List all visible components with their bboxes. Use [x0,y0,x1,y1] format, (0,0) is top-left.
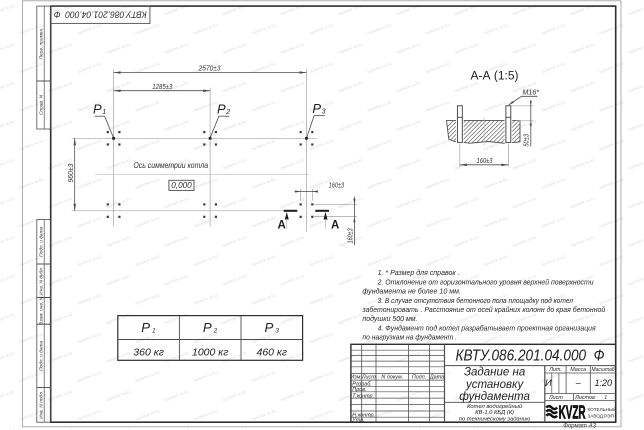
svg-text:teplotek-nv.kz: teplotek-nv.kz [164,3,190,16]
svg-text:teplotek-nv.kz: teplotek-nv.kz [338,41,364,54]
svg-text:teplotek-nv.kz: teplotek-nv.kz [599,22,625,35]
svg-text:Лист: Лист [361,375,376,381]
svg-text:teplotek-nv.kz: teplotek-nv.kz [0,119,15,132]
svg-text:teplotek-nv.kz: teplotek-nv.kz [570,3,596,16]
svg-text:teplotek-nv.kz: teplotek-nv.kz [454,234,480,247]
svg-text:P: P [141,320,150,335]
svg-text:teplotek-nv.kz: teplotek-nv.kz [222,273,248,286]
svg-text:1. * Размер для справок .: 1. * Размер для справок . [378,268,460,277]
svg-text:А: А [278,220,286,232]
svg-text:teplotek-nv.kz: teplotek-nv.kz [483,331,509,344]
svg-text:teplotek-nv.kz: teplotek-nv.kz [0,196,15,209]
svg-text:160±3: 160±3 [477,156,493,165]
svg-text:teplotek-nv.kz: teplotek-nv.kz [628,196,644,209]
svg-text:teplotek-nv.kz: teplotek-nv.kz [222,80,248,93]
svg-text:teplotek-nv.kz: teplotek-nv.kz [396,157,422,170]
svg-text:teplotek-nv.kz: teplotek-nv.kz [483,99,509,112]
svg-text:teplotek-nv.kz: teplotek-nv.kz [599,138,625,151]
svg-text:Инв. N дубл.: Инв. N дубл. [38,267,44,295]
svg-text:teplotek-nv.kz: teplotek-nv.kz [396,3,422,16]
svg-text:Масштаб: Масштаб [592,367,616,373]
svg-text:N докум.: N докум. [381,375,403,381]
svg-text:–: – [575,378,582,388]
svg-text:teplotek-nv.kz: teplotek-nv.kz [628,157,644,170]
svg-text:teplotek-nv.kz: teplotek-nv.kz [0,3,15,16]
svg-text:по нагрузкам на фундамент .: по нагрузкам на фундамент . [362,333,457,342]
svg-text:1: 1 [152,328,156,335]
svg-text:КВТУ.086.201.04.000 Ф: КВТУ.086.201.04.000 Ф [456,348,605,365]
svg-text:teplotek-nv.kz: teplotek-nv.kz [541,331,567,344]
svg-text:teplotek-nv.kz: teplotek-nv.kz [309,370,335,383]
svg-text:teplotek-nv.kz: teplotek-nv.kz [628,273,644,286]
svg-text:teplotek-nv.kz: teplotek-nv.kz [599,292,625,305]
svg-text:teplotek-nv.kz: teplotek-nv.kz [338,80,364,93]
svg-text:фундамента не более 10 мм.: фундамента не более 10 мм. [362,287,461,296]
svg-text:teplotek-nv.kz: teplotek-nv.kz [512,196,538,209]
svg-text:teplotek-nv.kz: teplotek-nv.kz [338,196,364,209]
svg-text:teplotek-nv.kz: teplotek-nv.kz [425,99,451,112]
svg-text:teplotek-nv.kz: teplotek-nv.kz [396,41,422,54]
svg-text:teplotek-nv.kz: teplotek-nv.kz [570,196,596,209]
svg-text:1:20: 1:20 [595,378,613,388]
svg-text:Перв. примен.: Перв. примен. [38,28,44,60]
svg-text:teplotek-nv.kz: teplotek-nv.kz [599,215,625,228]
svg-text:teplotek-nv.kz: teplotek-nv.kz [135,177,161,190]
svg-text:Лист: Лист [548,395,563,401]
svg-text:2: 2 [225,109,230,116]
svg-text:teplotek-nv.kz: teplotek-nv.kz [309,254,335,267]
svg-text:teplotek-nv.kz: teplotek-nv.kz [309,331,335,344]
svg-text:teplotek-nv.kz: teplotek-nv.kz [541,61,567,74]
svg-text:teplotek-nv.kz: teplotek-nv.kz [164,389,190,402]
svg-text:teplotek-nv.kz: teplotek-nv.kz [280,119,306,132]
svg-text:teplotek-nv.kz: teplotek-nv.kz [164,196,190,209]
svg-text:teplotek-nv.kz: teplotek-nv.kz [164,41,190,54]
svg-text:teplotek-nv.kz: teplotek-nv.kz [425,177,451,190]
svg-text:teplotek-nv.kz: teplotek-nv.kz [135,138,161,151]
svg-text:teplotek-nv.kz: teplotek-nv.kz [628,3,644,16]
svg-text:teplotek-nv.kz: teplotek-nv.kz [541,22,567,35]
svg-text:teplotek-nv.kz: teplotek-nv.kz [77,292,103,305]
svg-text:teplotek-nv.kz: teplotek-nv.kz [222,157,248,170]
svg-text:teplotek-nv.kz: teplotek-nv.kz [222,119,248,132]
svg-text:teplotek-nv.kz: teplotek-nv.kz [425,138,451,151]
svg-text:160±3: 160±3 [347,228,354,243]
svg-text:teplotek-nv.kz: teplotek-nv.kz [222,3,248,16]
svg-text:teplotek-nv.kz: teplotek-nv.kz [599,331,625,344]
svg-text:teplotek-nv.kz: teplotek-nv.kz [77,370,103,383]
svg-text:Котел водогрейный: Котел водогрейный [467,403,523,410]
svg-text:teplotek-nv.kz: teplotek-nv.kz [135,254,161,267]
svg-text:teplotek-nv.kz: teplotek-nv.kz [222,196,248,209]
svg-text:teplotek-nv.kz: teplotek-nv.kz [599,61,625,74]
svg-text:teplotek-nv.kz: teplotek-nv.kz [251,99,277,112]
svg-text:Лит.: Лит. [548,367,562,373]
svg-text:А-А (1:5): А-А (1:5) [471,71,519,83]
svg-text:teplotek-nv.kz: teplotek-nv.kz [0,157,15,170]
svg-text:teplotek-nv.kz: teplotek-nv.kz [0,41,15,54]
svg-text:teplotek-nv.kz: teplotek-nv.kz [541,138,567,151]
svg-text:teplotek-nv.kz: teplotek-nv.kz [628,389,644,402]
svg-text:teplotek-nv.kz: teplotek-nv.kz [164,312,190,325]
svg-text:teplotek-nv.kz: teplotek-nv.kz [280,273,306,286]
svg-text:teplotek-nv.kz: teplotek-nv.kz [338,119,364,132]
svg-text:teplotek-nv.kz: teplotek-nv.kz [367,138,393,151]
svg-text:1285±3: 1285±3 [152,82,172,91]
svg-text:teplotek-nv.kz: teplotek-nv.kz [164,350,190,363]
svg-text:teplotek-nv.kz: teplotek-nv.kz [193,408,219,421]
svg-text:по техническому заданию: по техническому заданию [459,417,531,423]
svg-text:teplotek-nv.kz: teplotek-nv.kz [135,408,161,421]
svg-text:забетонировать . Расстояние от: забетонировать . Расстояние от осей край… [361,305,605,314]
svg-text:P: P [265,320,274,335]
svg-text:И: И [545,378,552,388]
svg-text:teplotek-nv.kz: teplotek-nv.kz [512,3,538,16]
svg-text:P: P [203,320,212,335]
svg-text:teplotek-nv.kz: teplotek-nv.kz [135,292,161,305]
svg-text:teplotek-nv.kz: teplotek-nv.kz [193,22,219,35]
svg-text:teplotek-nv.kz: teplotek-nv.kz [367,254,393,267]
svg-text:А: А [331,220,339,232]
svg-text:КВ-1,0 КБД (К): КВ-1,0 КБД (К) [475,410,514,416]
svg-text:teplotek-nv.kz: teplotek-nv.kz [425,408,451,421]
svg-text:teplotek-nv.kz: teplotek-nv.kz [454,3,480,16]
svg-text:teplotek-nv.kz: teplotek-nv.kz [106,234,132,247]
svg-text:teplotek-nv.kz: teplotek-nv.kz [483,215,509,228]
svg-text:teplotek-nv.kz: teplotek-nv.kz [135,215,161,228]
svg-text:teplotek-nv.kz: teplotek-nv.kz [77,61,103,74]
svg-text:teplotek-nv.kz: teplotek-nv.kz [599,99,625,112]
svg-text:Взам. инв. N: Взам. инв. N [38,296,44,324]
svg-text:teplotek-nv.kz: teplotek-nv.kz [106,350,132,363]
svg-text:teplotek-nv.kz: teplotek-nv.kz [599,254,625,267]
svg-text:teplotek-nv.kz: teplotek-nv.kz [106,389,132,402]
svg-text:teplotek-nv.kz: teplotek-nv.kz [280,312,306,325]
svg-text:teplotek-nv.kz: teplotek-nv.kz [77,331,103,344]
svg-text:teplotek-nv.kz: teplotek-nv.kz [106,119,132,132]
svg-text:teplotek-nv.kz: teplotek-nv.kz [135,61,161,74]
svg-text:3: 3 [275,328,279,335]
svg-text:Изм.: Изм. [350,375,362,381]
svg-text:2. Отклонение от горизонтально: 2. Отклонение от горизонтального уровня … [377,277,594,286]
svg-text:ЗАВОД РЭП: ЗАВОД РЭП [588,413,614,418]
svg-text:фундамента: фундамента [459,391,530,403]
svg-text:teplotek-nv.kz: teplotek-nv.kz [338,3,364,16]
svg-text:teplotek-nv.kz: teplotek-nv.kz [77,215,103,228]
svg-text:teplotek-nv.kz: teplotek-nv.kz [193,99,219,112]
svg-text:P: P [312,101,321,116]
svg-text:0,000: 0,000 [171,181,192,190]
svg-text:teplotek-nv.kz: teplotek-nv.kz [309,61,335,74]
svg-text:2: 2 [213,328,218,335]
svg-text:teplotek-nv.kz: teplotek-nv.kz [541,99,567,112]
svg-text:teplotek-nv.kz: teplotek-nv.kz [454,41,480,54]
svg-text:Подп. и дата: Подп. и дата [38,226,44,256]
svg-text:teplotek-nv.kz: teplotek-nv.kz [280,80,306,93]
svg-text:teplotek-nv.kz: teplotek-nv.kz [512,41,538,54]
svg-text:1: 1 [604,395,607,401]
svg-text:Утв.: Утв. [351,417,364,423]
svg-text:Справ. N: Справ. N [38,94,44,115]
svg-text:teplotek-nv.kz: teplotek-nv.kz [135,99,161,112]
svg-text:teplotek-nv.kz: teplotek-nv.kz [164,119,190,132]
svg-text:teplotek-nv.kz: teplotek-nv.kz [106,273,132,286]
svg-text:P: P [217,102,226,117]
svg-text:3: 3 [322,109,326,116]
svg-text:teplotek-nv.kz: teplotek-nv.kz [338,273,364,286]
svg-text:teplotek-nv.kz: teplotek-nv.kz [106,157,132,170]
svg-text:teplotek-nv.kz: teplotek-nv.kz [338,312,364,325]
svg-text:установку: установку [465,379,525,391]
svg-text:KVZR: KVZR [559,401,586,422]
svg-text:teplotek-nv.kz: teplotek-nv.kz [396,234,422,247]
svg-text:teplotek-nv.kz: teplotek-nv.kz [483,254,509,267]
svg-text:teplotek-nv.kz: teplotek-nv.kz [222,41,248,54]
svg-text:Подп. и дата: Подп. и дата [38,341,44,371]
svg-text:teplotek-nv.kz: teplotek-nv.kz [628,41,644,54]
svg-text:teplotek-nv.kz: teplotek-nv.kz [280,196,306,209]
svg-text:teplotek-nv.kz: teplotek-nv.kz [541,177,567,190]
svg-text:teplotek-nv.kz: teplotek-nv.kz [77,254,103,267]
svg-text:teplotek-nv.kz: teplotek-nv.kz [106,312,132,325]
svg-text:Т.контр.: Т.контр. [352,393,374,399]
svg-text:teplotek-nv.kz: teplotek-nv.kz [0,234,15,247]
svg-text:КОТЕЛЬНЫЙ: КОТЕЛЬНЫЙ [588,405,617,412]
svg-text:teplotek-nv.kz: teplotek-nv.kz [367,215,393,228]
svg-text:960±3: 960±3 [66,164,75,183]
svg-text:Ось симметрии котла: Ось симметрии котла [133,161,208,170]
svg-text:teplotek-nv.kz: teplotek-nv.kz [251,408,277,421]
svg-text:teplotek-nv.kz: teplotek-nv.kz [280,389,306,402]
svg-text:teplotek-nv.kz: teplotek-nv.kz [77,138,103,151]
svg-text:teplotek-nv.kz: teplotek-nv.kz [396,80,422,93]
svg-text:1000 кг: 1000 кг [192,347,228,359]
svg-text:teplotek-nv.kz: teplotek-nv.kz [193,215,219,228]
svg-text:teplotek-nv.kz: teplotek-nv.kz [425,22,451,35]
svg-text:Дата: Дата [429,375,444,381]
svg-text:teplotek-nv.kz: teplotek-nv.kz [570,157,596,170]
svg-text:Формат А3: Формат А3 [563,423,596,429]
svg-text:teplotek-nv.kz: teplotek-nv.kz [425,254,451,267]
svg-text:teplotek-nv.kz: teplotek-nv.kz [570,41,596,54]
svg-text:teplotek-nv.kz: teplotek-nv.kz [280,234,306,247]
svg-text:teplotek-nv.kz: teplotek-nv.kz [483,177,509,190]
svg-text:teplotek-nv.kz: teplotek-nv.kz [367,22,393,35]
svg-text:teplotek-nv.kz: teplotek-nv.kz [425,61,451,74]
svg-text:teplotek-nv.kz: teplotek-nv.kz [0,80,15,93]
svg-text:teplotek-nv.kz: teplotek-nv.kz [193,254,219,267]
svg-text:460 кг: 460 кг [257,347,288,359]
svg-text:teplotek-nv.kz: teplotek-nv.kz [251,177,277,190]
svg-text:teplotek-nv.kz: teplotek-nv.kz [338,157,364,170]
svg-text:teplotek-nv.kz: teplotek-nv.kz [193,177,219,190]
svg-text:teplotek-nv.kz: teplotek-nv.kz [251,215,277,228]
svg-text:teplotek-nv.kz: teplotek-nv.kz [396,196,422,209]
svg-text:teplotek-nv.kz: teplotek-nv.kz [0,389,15,402]
svg-text:teplotek-nv.kz: teplotek-nv.kz [251,370,277,383]
svg-text:teplotek-nv.kz: teplotek-nv.kz [164,273,190,286]
svg-text:Инв. N подл.: Инв. N подл. [38,391,44,419]
svg-text:teplotek-nv.kz: teplotek-nv.kz [135,370,161,383]
svg-text:teplotek-nv.kz: teplotek-nv.kz [570,119,596,132]
svg-text:teplotek-nv.kz: teplotek-nv.kz [541,254,567,267]
svg-text:teplotek-nv.kz: teplotek-nv.kz [367,177,393,190]
svg-text:teplotek-nv.kz: teplotek-nv.kz [280,157,306,170]
svg-text:teplotek-nv.kz: teplotek-nv.kz [0,273,15,286]
svg-text:teplotek-nv.kz: teplotek-nv.kz [628,80,644,93]
svg-text:teplotek-nv.kz: teplotek-nv.kz [309,292,335,305]
svg-text:P: P [93,102,102,117]
svg-text:teplotek-nv.kz: teplotek-nv.kz [454,196,480,209]
svg-text:teplotek-nv.kz: teplotek-nv.kz [193,292,219,305]
svg-text:teplotek-nv.kz: teplotek-nv.kz [164,234,190,247]
svg-text:160±3: 160±3 [329,183,345,190]
svg-text:teplotek-nv.kz: teplotek-nv.kz [367,99,393,112]
svg-text:teplotek-nv.kz: teplotek-nv.kz [396,119,422,132]
svg-text:teplotek-nv.kz: teplotek-nv.kz [193,370,219,383]
svg-text:3. В случае отсутствия бетонно: 3. В случае отсутствия бетонного пола пл… [378,296,574,305]
svg-text:teplotek-nv.kz: teplotek-nv.kz [309,22,335,35]
svg-text:teplotek-nv.kz: teplotek-nv.kz [0,312,15,325]
svg-text:teplotek-nv.kz: teplotek-nv.kz [425,215,451,228]
svg-text:360 кг: 360 кг [133,347,164,359]
svg-text:Пров.: Пров. [352,387,366,393]
svg-text:КВТУ.086.201.04.000 Ф: КВТУ.086.201.04.000 Ф [54,10,147,20]
svg-text:teplotek-nv.kz: teplotek-nv.kz [77,408,103,421]
svg-text:teplotek-nv.kz: teplotek-nv.kz [309,408,335,421]
svg-text:teplotek-nv.kz: teplotek-nv.kz [483,22,509,35]
svg-text:teplotek-nv.kz: teplotek-nv.kz [222,234,248,247]
svg-text:teplotek-nv.kz: teplotek-nv.kz [599,177,625,190]
svg-text:teplotek-nv.kz: teplotek-nv.kz [135,22,161,35]
svg-text:50±3: 50±3 [522,133,531,146]
svg-text:подушки 500 мм.: подушки 500 мм. [362,314,417,323]
svg-text:1: 1 [102,109,106,116]
svg-text:teplotek-nv.kz: teplotek-nv.kz [280,41,306,54]
svg-text:teplotek-nv.kz: teplotek-nv.kz [77,22,103,35]
svg-text:teplotek-nv.kz: teplotek-nv.kz [251,61,277,74]
svg-text:2570±3: 2570±3 [198,64,221,73]
svg-text:4. Фундамент под котел разраба: 4. Фундамент под котел разрабатывает про… [378,323,596,332]
svg-text:teplotek-nv.kz: teplotek-nv.kz [251,138,277,151]
svg-text:teplotek-nv.kz: teplotek-nv.kz [193,138,219,151]
svg-text:teplotek-nv.kz: teplotek-nv.kz [251,254,277,267]
svg-text:teplotek-nv.kz: teplotek-nv.kz [628,119,644,132]
svg-text:teplotek-nv.kz: teplotek-nv.kz [251,22,277,35]
svg-text:teplotek-nv.kz: teplotek-nv.kz [280,3,306,16]
svg-text:teplotek-nv.kz: teplotek-nv.kz [251,292,277,305]
svg-text:teplotek-nv.kz: teplotek-nv.kz [628,350,644,363]
svg-text:teplotek-nv.kz: teplotek-nv.kz [541,215,567,228]
svg-text:teplotek-nv.kz: teplotek-nv.kz [77,177,103,190]
svg-text:Подп.: Подп. [412,375,426,381]
svg-text:teplotek-nv.kz: teplotek-nv.kz [512,157,538,170]
svg-text:teplotek-nv.kz: teplotek-nv.kz [106,41,132,54]
svg-text:teplotek-nv.kz: teplotek-nv.kz [0,350,15,363]
svg-text:Задание на: Задание на [464,367,525,379]
svg-text:teplotek-nv.kz: teplotek-nv.kz [367,61,393,74]
svg-text:teplotek-nv.kz: teplotek-nv.kz [512,234,538,247]
svg-text:teplotek-nv.kz: teplotek-nv.kz [628,234,644,247]
svg-text:М16*: М16* [523,90,540,97]
svg-text:Листов: Листов [574,395,595,401]
svg-text:teplotek-nv.kz: teplotek-nv.kz [628,312,644,325]
svg-text:teplotek-nv.kz: teplotek-nv.kz [222,312,248,325]
svg-text:Масса: Масса [570,367,586,373]
svg-text:teplotek-nv.kz: teplotek-nv.kz [106,196,132,209]
svg-text:teplotek-nv.kz: teplotek-nv.kz [570,80,596,93]
svg-text:teplotek-nv.kz: teplotek-nv.kz [222,389,248,402]
svg-text:teplotek-nv.kz: teplotek-nv.kz [570,234,596,247]
